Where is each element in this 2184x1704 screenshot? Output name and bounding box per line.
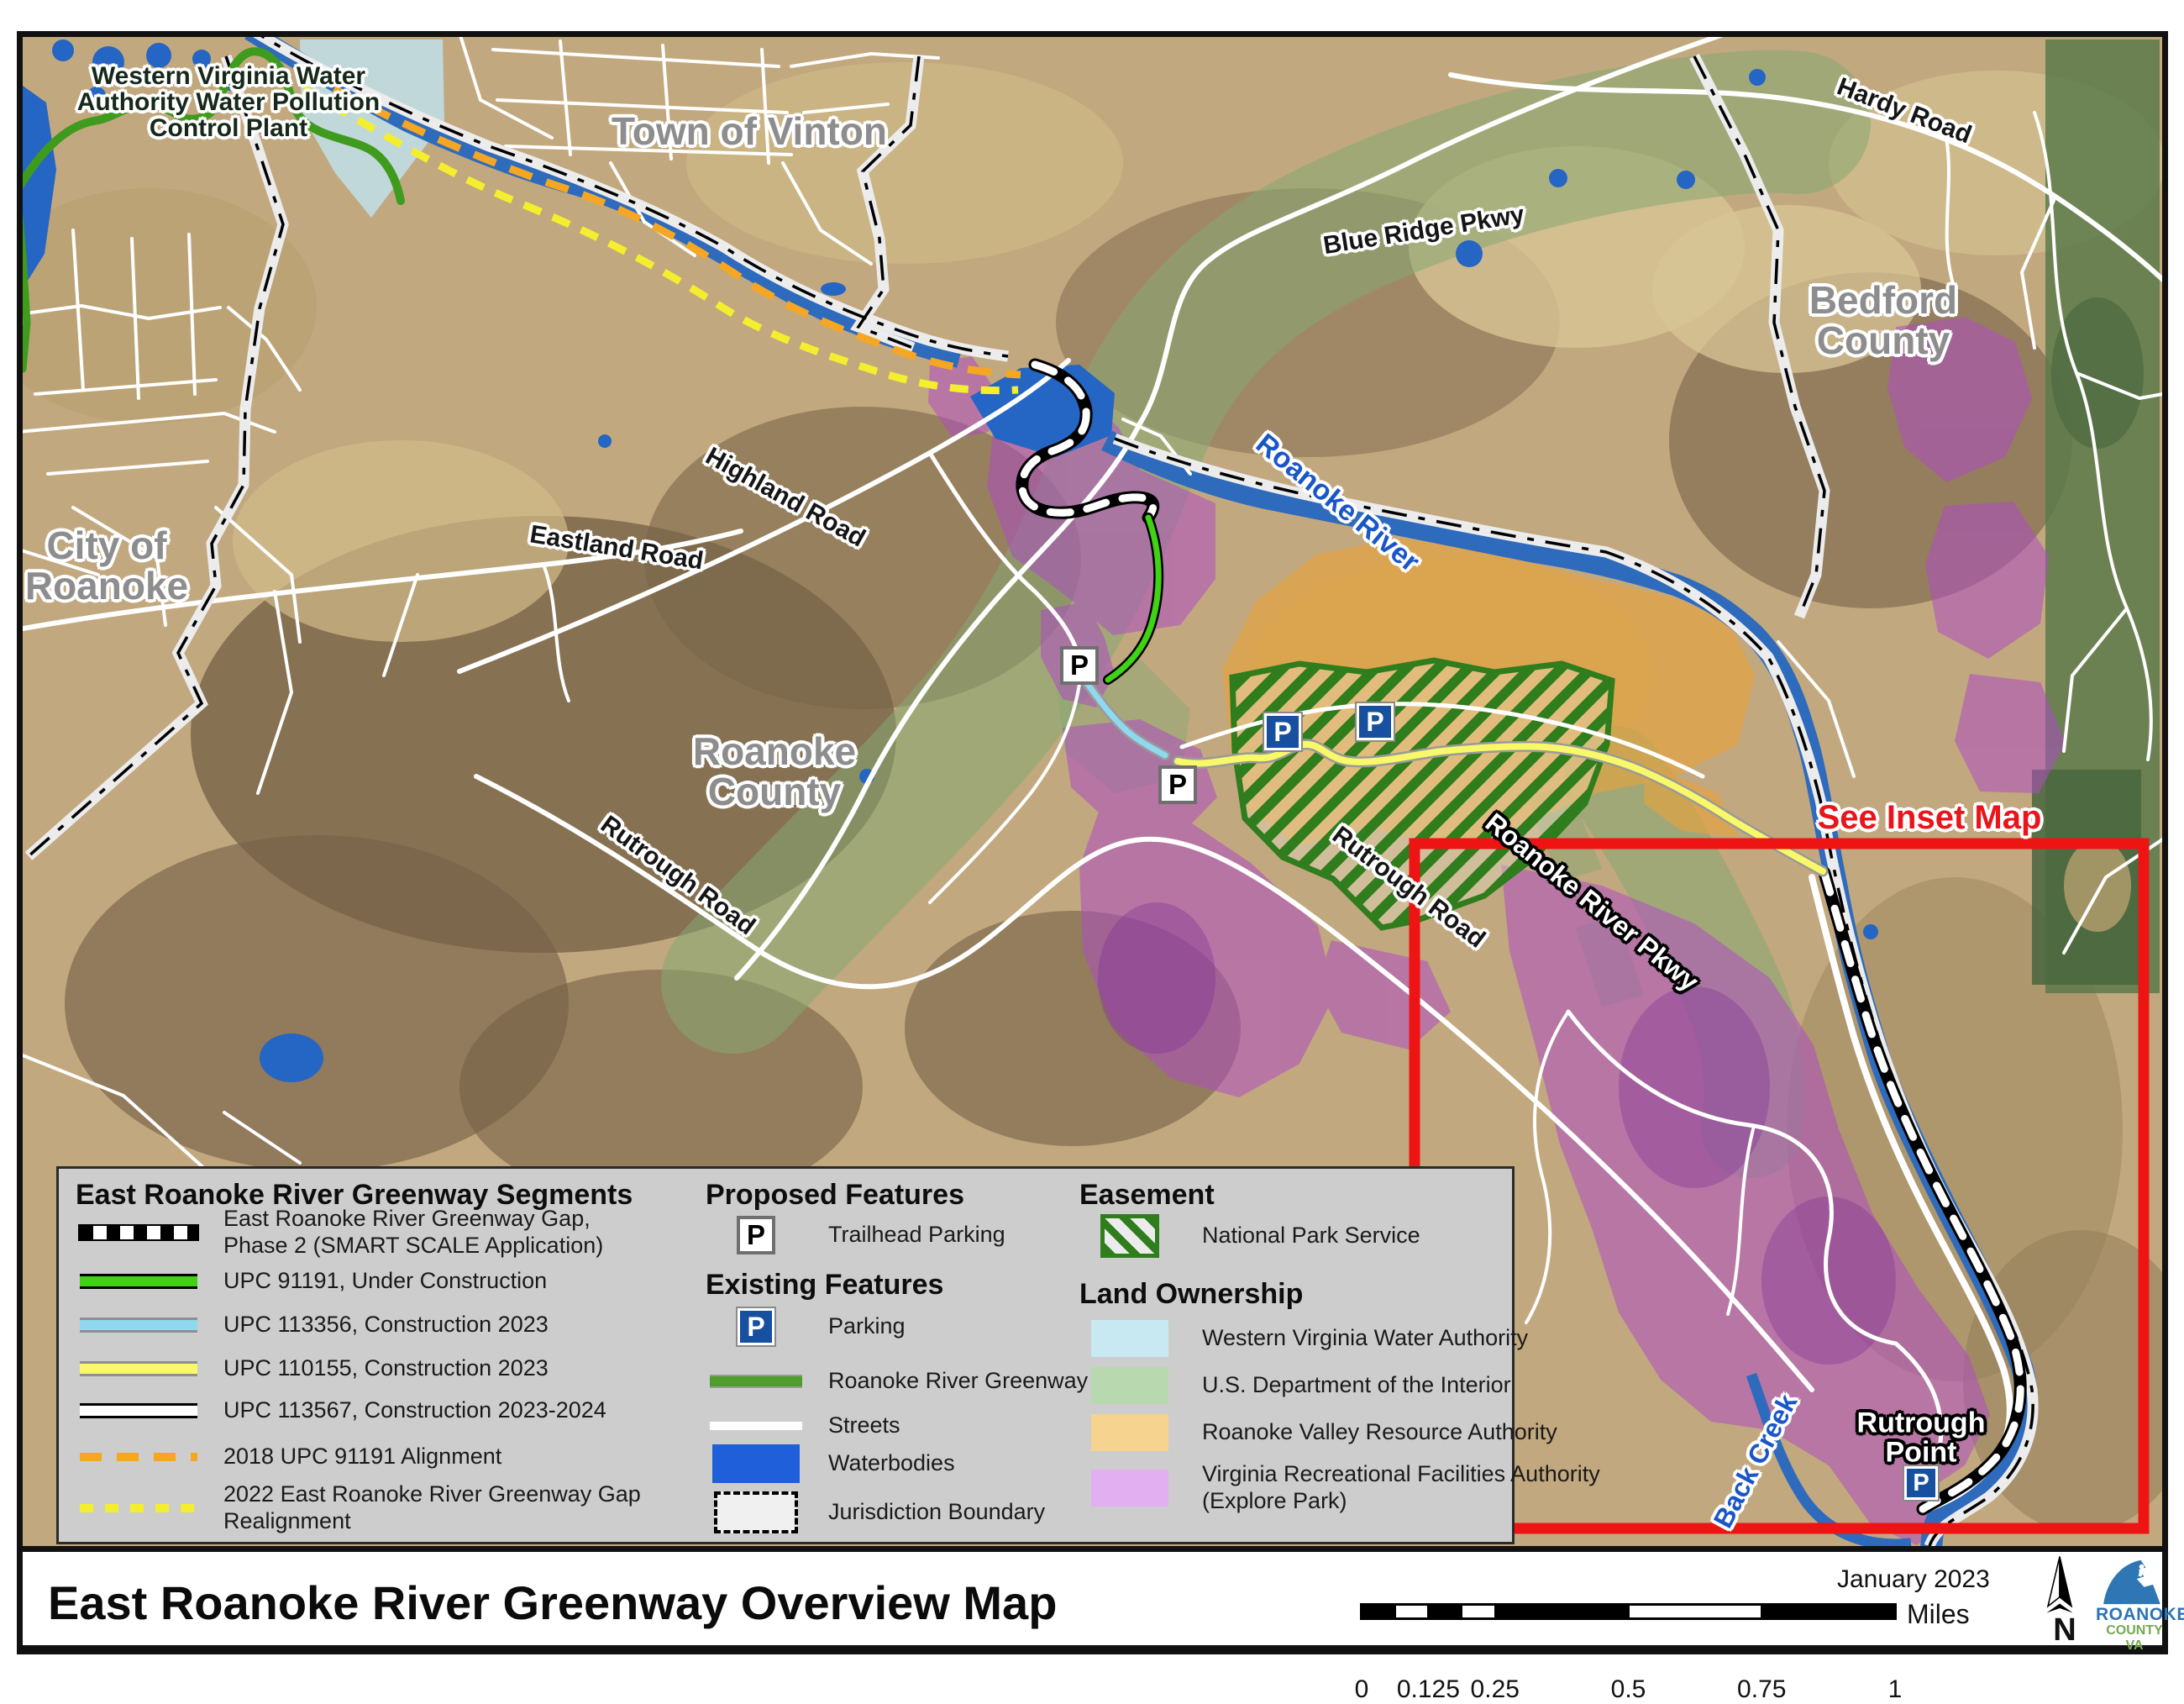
legend-item-2022-realignment: 2022 East Roanoke River Greenway GapReal… bbox=[76, 1481, 641, 1535]
scale-tick: 0.125 bbox=[1397, 1675, 1460, 1704]
legend-item-doi: U.S. Department of the Interior bbox=[1079, 1367, 1511, 1404]
upc113567-line-swatch bbox=[80, 1403, 197, 1418]
map-canvas: Western Virginia WaterAuthority Water Po… bbox=[23, 37, 2162, 1546]
scale-tick: 0.25 bbox=[1471, 1675, 1520, 1704]
page-title: East Roanoke River Greenway Overview Map bbox=[48, 1575, 1057, 1630]
legend-item-trailhead-parking: P Trailhead Parking bbox=[706, 1216, 1005, 1254]
parking-icon-1: P bbox=[1264, 713, 1301, 750]
upc91191-line-swatch bbox=[80, 1274, 197, 1289]
scale-tick: 0 bbox=[1355, 1675, 1369, 1704]
legend-item-vrfa: Virginia Recreational Facilities Authori… bbox=[1079, 1461, 1600, 1515]
scale-segment bbox=[1495, 1605, 1629, 1618]
scale-tick: 0.75 bbox=[1737, 1675, 1786, 1704]
upc110155-line-swatch bbox=[80, 1361, 197, 1376]
map-label-bedford-county: BedfordCounty bbox=[1809, 281, 1957, 361]
wvwa-ownership-swatch bbox=[1091, 1320, 1168, 1357]
vrfa-ownership-swatch bbox=[1091, 1470, 1168, 1507]
title-bar: East Roanoke River Greenway Overview Map… bbox=[17, 1552, 2168, 1654]
legend-item-upc113567: UPC 113567, Construction 2023-2024 bbox=[76, 1397, 606, 1424]
legend-item-waterbodies: Waterbodies bbox=[706, 1444, 955, 1483]
legend-heading-existing: Existing Features bbox=[706, 1269, 943, 1302]
legend-item-streets: Streets bbox=[706, 1412, 900, 1439]
north-label: N bbox=[2034, 1614, 2095, 1646]
upc113356-line-swatch bbox=[80, 1317, 197, 1333]
legend-heading-proposed: Proposed Features bbox=[706, 1179, 964, 1212]
scale-bar: 0 0.125 0.25 0.5 0.75 1 bbox=[1360, 1603, 1897, 1620]
legend-item-jurisdiction-boundary: Jurisdiction Boundary bbox=[706, 1491, 1045, 1533]
legend-heading-easement: Easement bbox=[1079, 1179, 1215, 1212]
alignment-2018-dash-swatch bbox=[80, 1453, 197, 1461]
legend-item-upc110155: UPC 110155, Construction 2023 bbox=[76, 1355, 549, 1382]
realignment-2022-dot-swatch bbox=[80, 1504, 197, 1512]
scale-units-label: Miles bbox=[1907, 1599, 1970, 1630]
scale-segment bbox=[1761, 1605, 1895, 1618]
legend-item-greenway: Roanoke River Greenway bbox=[706, 1368, 1088, 1395]
parking-legend-icon: P bbox=[738, 1308, 774, 1345]
gap-phase2-line-swatch bbox=[78, 1224, 199, 1241]
trailhead-parking-icon-1: P bbox=[1060, 646, 1099, 685]
legend-item-parking: P Parking bbox=[706, 1308, 906, 1345]
scale-tick: 1 bbox=[1888, 1675, 1903, 1704]
legend-heading-land-ownership: Land Ownership bbox=[1079, 1278, 1303, 1311]
legend-item-upc91191: UPC 91191, Under Construction bbox=[76, 1268, 547, 1295]
trailhead-parking-legend-icon: P bbox=[737, 1216, 775, 1254]
county-logo: ROANOKE COUNTY VA bbox=[2096, 1557, 2173, 1653]
county-logo-icon bbox=[2096, 1557, 2166, 1606]
map: Western Virginia WaterAuthority Water Po… bbox=[17, 31, 2168, 1552]
scale-segment bbox=[1395, 1605, 1429, 1618]
legend: East Roanoke River Greenway Segments Eas… bbox=[56, 1166, 1515, 1544]
parking-icon-2: P bbox=[1357, 703, 1394, 740]
legend-column-segments: East Roanoke River Greenway Segments Eas… bbox=[76, 1169, 693, 1542]
map-label-roanoke-county: RoanokeCounty bbox=[693, 732, 856, 813]
nps-easement-swatch bbox=[1100, 1214, 1159, 1258]
parking-icon-rutrough-point: P bbox=[1904, 1466, 1938, 1500]
rvra-ownership-swatch bbox=[1091, 1414, 1168, 1451]
legend-item-upc113356: UPC 113356, Construction 2023 bbox=[76, 1312, 549, 1338]
legend-item-gap-phase2: East Roanoke River Greenway Gap,Phase 2 … bbox=[76, 1206, 603, 1260]
scale-segment bbox=[1428, 1605, 1462, 1618]
map-label-see-inset-map: See Inset Map bbox=[1818, 801, 2042, 836]
north-arrow: N bbox=[2034, 1555, 2095, 1646]
streets-line-swatch bbox=[710, 1422, 802, 1430]
county-logo-text-2: COUNTY VA bbox=[2096, 1623, 2173, 1653]
legend-item-2018-alignment: 2018 UPC 91191 Alignment bbox=[76, 1444, 501, 1470]
map-date: January 2023 bbox=[1837, 1565, 1990, 1594]
waterbodies-swatch bbox=[712, 1444, 800, 1483]
map-label-city-of-roanoke: City ofRoanoke bbox=[25, 526, 188, 607]
legend-column-ownership: Easement National Park Service Land Owne… bbox=[1079, 1169, 1512, 1542]
county-logo-text-1: ROANOKE bbox=[2096, 1606, 2173, 1623]
north-arrow-icon bbox=[2034, 1555, 2085, 1614]
scale-tick: 0.5 bbox=[1611, 1675, 1646, 1704]
legend-item-nps: National Park Service bbox=[1079, 1214, 1420, 1258]
jurisdiction-boundary-swatch bbox=[714, 1491, 798, 1533]
scale-segment bbox=[1362, 1605, 1395, 1618]
greenway-line-swatch bbox=[710, 1375, 802, 1388]
map-label-rutrough-point: RutroughPoint bbox=[1857, 1409, 1986, 1469]
map-label-town-of-vinton: Town of Vinton bbox=[612, 112, 887, 152]
scale-segment bbox=[1629, 1605, 1762, 1618]
trailhead-parking-icon-2: P bbox=[1158, 765, 1197, 804]
legend-item-rvra: Roanoke Valley Resource Authority bbox=[1079, 1414, 1557, 1451]
legend-column-features: Proposed Features P Trailhead Parking Ex… bbox=[706, 1169, 1075, 1542]
legend-item-wvwa: Western Virginia Water Authority bbox=[1079, 1320, 1528, 1357]
scale-segment bbox=[1462, 1605, 1495, 1618]
map-label-wvwa-plant: Western Virginia WaterAuthority Water Po… bbox=[77, 63, 381, 142]
doi-ownership-swatch bbox=[1091, 1367, 1168, 1404]
